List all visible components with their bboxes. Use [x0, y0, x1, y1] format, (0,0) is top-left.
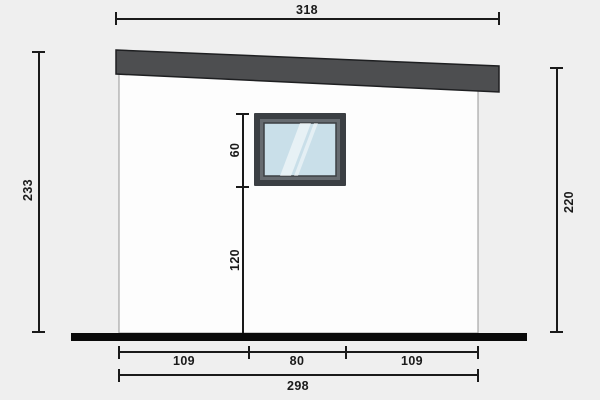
dim-tick — [32, 331, 45, 333]
dim-tick — [550, 331, 563, 333]
dim-window-height-label: 60 — [229, 143, 242, 158]
dim-right-height-line — [556, 68, 558, 333]
dim-window-height-line — [242, 114, 244, 187]
dim-tick — [477, 369, 479, 382]
dim-tick — [248, 346, 250, 359]
dim-tick — [32, 51, 45, 53]
wall — [119, 72, 478, 333]
dim-total-width-line — [119, 374, 478, 376]
dim-segment-center-label: 80 — [290, 355, 305, 368]
dim-sill-height-label: 120 — [229, 249, 242, 271]
dim-tick — [236, 113, 249, 115]
dim-left-height-label: 233 — [22, 179, 35, 201]
dim-tick — [550, 67, 563, 69]
dim-tick — [498, 12, 500, 25]
dim-left-height-line — [38, 52, 40, 333]
elevation-diagram: 318 233 220 60 120 109 80 109 298 — [0, 0, 600, 400]
ground-line — [71, 333, 527, 341]
dim-roof-span-label: 318 — [296, 4, 318, 17]
dim-tick — [477, 346, 479, 359]
dim-bottom-segments-line — [119, 351, 478, 353]
dim-roof-span-line — [116, 18, 499, 20]
window — [254, 113, 346, 186]
dim-right-height-label: 220 — [563, 191, 576, 213]
dim-segment-left-label: 109 — [173, 355, 195, 368]
drawing-layer — [0, 0, 600, 400]
dim-tick — [118, 369, 120, 382]
dim-sill-height-line — [242, 188, 244, 333]
dim-tick — [118, 346, 120, 359]
dim-tick — [345, 346, 347, 359]
dim-tick — [115, 12, 117, 25]
dim-total-width-label: 298 — [287, 380, 309, 393]
dim-segment-right-label: 109 — [401, 355, 423, 368]
